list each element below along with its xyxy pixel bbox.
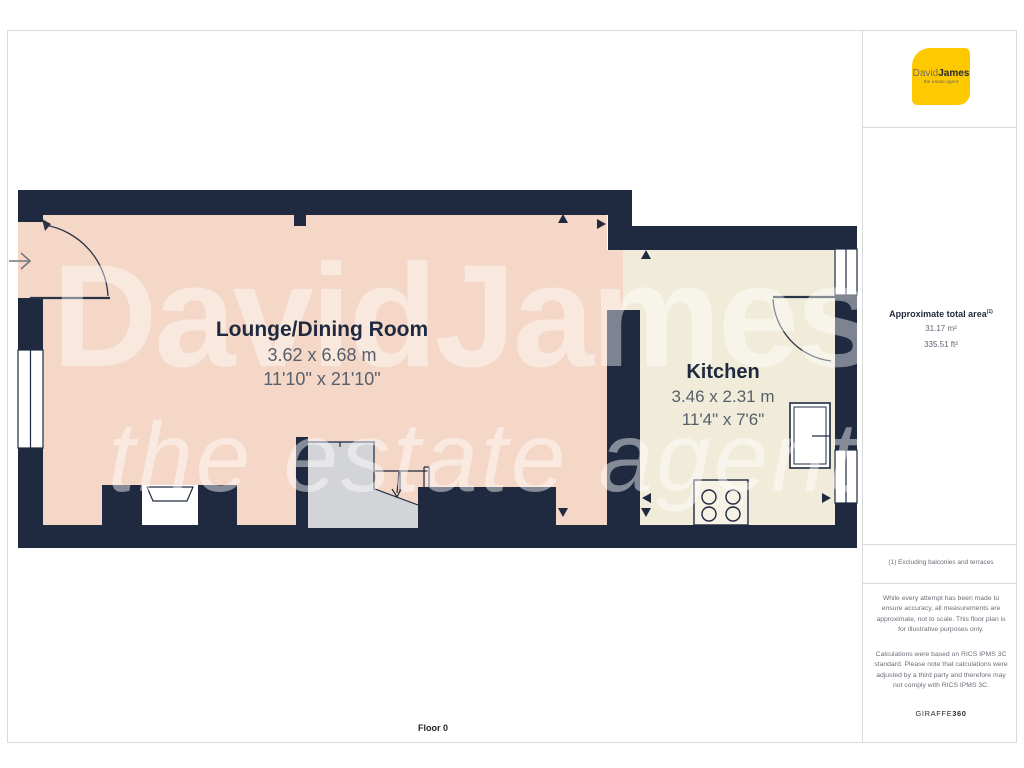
logo-brand-secondary: James bbox=[938, 68, 969, 79]
giraffe360-brand: GIRAFFE360 bbox=[867, 709, 1015, 718]
footnote-marker: (1) bbox=[987, 309, 993, 315]
total-area-block: Approximate total area(1) 31.17 m² 335.5… bbox=[867, 306, 1015, 353]
total-area-metric: 31.17 m² bbox=[867, 321, 1015, 337]
logo-tagline: the estate agent bbox=[924, 80, 958, 85]
disclaimer-rics: Calculations were based on RICS IPMS 3C … bbox=[874, 650, 1008, 691]
logo-brand-text: DavidJames bbox=[913, 68, 970, 79]
logo-brand-primary: David bbox=[913, 68, 939, 79]
estate-agent-logo: DavidJames the estate agent bbox=[912, 48, 970, 105]
sidebar-divider-footnote-bottom bbox=[863, 583, 1017, 584]
footnote-text: (1) Excluding balconies and terraces bbox=[870, 558, 1012, 567]
sidebar-divider bbox=[862, 30, 863, 743]
floorplan-page: DavidJames the estate agent Lounge/Dinin… bbox=[0, 0, 1024, 768]
total-area-imperial: 335.51 ft² bbox=[867, 337, 1015, 353]
sidebar-divider-footnote-top bbox=[863, 544, 1017, 545]
sidebar-divider-logo bbox=[863, 127, 1017, 128]
content-border bbox=[7, 30, 1017, 743]
total-area-title: Approximate total area(1) bbox=[867, 306, 1015, 321]
disclaimer-accuracy: While every attempt has been made to ens… bbox=[874, 594, 1008, 635]
floor-label: Floor 0 bbox=[330, 723, 536, 733]
